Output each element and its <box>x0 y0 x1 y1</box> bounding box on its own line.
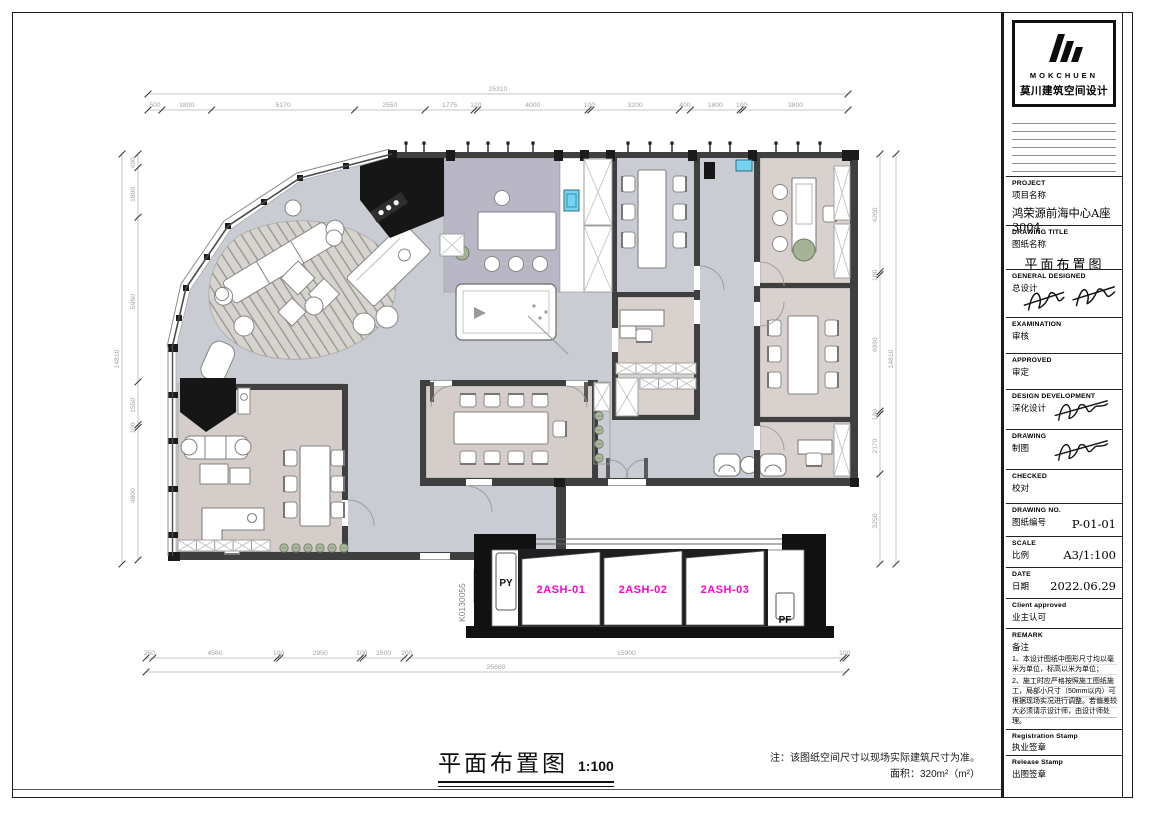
svg-text:4930: 4930 <box>872 337 879 352</box>
svg-text:25310: 25310 <box>489 86 508 93</box>
svg-text:100: 100 <box>839 650 851 657</box>
plan-notes: 注：该图纸空间尺寸以现场实际建筑尺寸为准。 面积：320m²（m²） <box>752 751 980 783</box>
svg-text:1800: 1800 <box>708 102 723 109</box>
svg-text:4000: 4000 <box>525 102 540 109</box>
ahu-panel-label: 2ASH-02 <box>619 584 668 596</box>
water-point <box>736 160 752 171</box>
ruled-lines <box>1012 116 1116 172</box>
svg-text:15900: 15900 <box>617 650 636 657</box>
field-remark: REMARK 备注 1、本设计图纸中图形尺寸均以毫米为单位，标高以米为单位； 2… <box>1006 628 1122 729</box>
field-project: PROJECT 项目名称 鸿荣源前海中心A座3004 <box>1006 176 1122 225</box>
svg-text:100: 100 <box>872 269 879 281</box>
remark-note: 1、本设计图纸中图形尺寸均以毫米为单位，标高以米为单位； <box>1012 655 1117 675</box>
svg-text:490: 490 <box>130 157 137 169</box>
svg-text:4560: 4560 <box>207 650 222 657</box>
service-box <box>704 162 715 179</box>
title-underline <box>438 781 614 787</box>
svg-text:100: 100 <box>584 102 596 109</box>
svg-text:2950: 2950 <box>313 650 328 657</box>
svg-text:1550: 1550 <box>130 397 137 412</box>
field-registration-stamp: Registration Stamp 执业签章 <box>1006 729 1122 756</box>
brand-name: MOKCHUEN <box>1015 71 1113 80</box>
svg-text:200: 200 <box>401 650 413 657</box>
floor-plan: 2531050018005170255017751204000100320040… <box>88 66 948 726</box>
svg-text:500: 500 <box>149 102 161 109</box>
field-drawing-title: DRAWING TITLE 图纸名称 平面布置图 <box>1006 225 1122 269</box>
drawing-scale-text: 1:100 <box>578 758 614 774</box>
field-general-designed: GENERAL DESIGNED 总设计 <box>1006 269 1122 317</box>
drawing-title-text: 平面布置图 <box>438 750 568 776</box>
pf-label: PF <box>779 615 792 626</box>
scale-value: A3/1:100 <box>1063 548 1116 562</box>
svg-text:400: 400 <box>679 102 691 109</box>
drawing-number: P-01-01 <box>1072 517 1116 531</box>
svg-text:25660: 25660 <box>487 664 506 671</box>
svg-text:100: 100 <box>273 650 285 657</box>
date-value: 2022.06.29 <box>1050 579 1116 593</box>
svg-text:2550: 2550 <box>382 102 397 109</box>
ahu-elevation-block: PY PF 2ASH-01 2ASH-02 2ASH-03 K0130055 <box>457 534 834 638</box>
field-scale: SCALE 比例 A3/1:100 <box>1006 536 1122 567</box>
field-drawing-no: DRAWING NO. 图纸编号 P-01-01 <box>1006 503 1122 536</box>
note-line: 注：该图纸空间尺寸以现场实际建筑尺寸为准。 <box>752 751 980 767</box>
field-client-approved: Client approved 业主认可 <box>1006 598 1122 628</box>
field-drawing: DRAWING 制图 <box>1006 429 1122 469</box>
svg-text:5960: 5960 <box>130 294 137 309</box>
svg-text:1775: 1775 <box>442 102 457 109</box>
brand-name-cn: 莫川建筑空间设计 <box>1015 83 1113 98</box>
svg-text:14810: 14810 <box>114 349 121 368</box>
area-line: 面积：320m²（m²） <box>752 767 980 783</box>
footer-rule <box>13 789 1001 790</box>
field-approved: APPROVED 审定 <box>1006 353 1122 389</box>
py-label: PY <box>499 578 513 589</box>
drawing-title-footer: 平面布置图1:100 <box>438 744 614 787</box>
svg-text:3200: 3200 <box>628 102 643 109</box>
svg-text:100: 100 <box>356 650 368 657</box>
field-release-stamp: Release Stamp 出图签章 <box>1006 755 1122 813</box>
ahu-panel-label: 2ASH-01 <box>537 584 586 596</box>
svg-text:250: 250 <box>144 650 156 657</box>
plant-large <box>793 239 815 261</box>
svg-text:3800: 3800 <box>788 102 803 109</box>
svg-text:1800: 1800 <box>179 102 194 109</box>
svg-text:100: 100 <box>872 409 879 421</box>
field-date: DATE 日期 2022.06.29 <box>1006 567 1122 598</box>
svg-text:100: 100 <box>736 102 748 109</box>
svg-text:1800: 1800 <box>130 187 137 202</box>
svg-text:100: 100 <box>130 422 137 434</box>
title-block: MOKCHUEN 莫川建筑空间设计 PROJECT 项目名称 鸿荣源前海中心A座… <box>1006 13 1123 797</box>
titleblock-divider <box>1001 12 1004 798</box>
svg-text:1500: 1500 <box>376 650 391 657</box>
svg-text:5170: 5170 <box>276 102 291 109</box>
shaft-code: K0130055 <box>457 583 467 622</box>
svg-text:4800: 4800 <box>130 488 137 503</box>
field-examination: EXAMINATION 审核 <box>1006 317 1122 353</box>
ahu-panel-label: 2ASH-03 <box>701 584 750 596</box>
pantry-table <box>478 212 556 250</box>
mokchuen-logo-icon <box>1041 30 1087 64</box>
svg-text:14810: 14810 <box>888 349 895 368</box>
sink <box>564 190 579 211</box>
svg-text:2170: 2170 <box>872 438 879 453</box>
field-design-development: DESIGN DEVELOPMENT 深化设计 <box>1006 389 1122 429</box>
svg-text:4260: 4260 <box>872 207 879 222</box>
drawing-sheet: 2531050018005170255017751204000100320040… <box>0 0 1150 813</box>
entry-armchairs <box>714 454 786 476</box>
field-checked: CHECKED 校对 <box>1006 469 1122 503</box>
brand-logo: MOKCHUEN 莫川建筑空间设计 <box>1012 20 1116 107</box>
remark-note: 2、施工时应严格按照施工图纸施工，局部小尺寸（50mm以内）可根据现场实况进行调… <box>1012 677 1117 727</box>
svg-text:3250: 3250 <box>872 513 879 528</box>
svg-text:120: 120 <box>470 102 482 109</box>
